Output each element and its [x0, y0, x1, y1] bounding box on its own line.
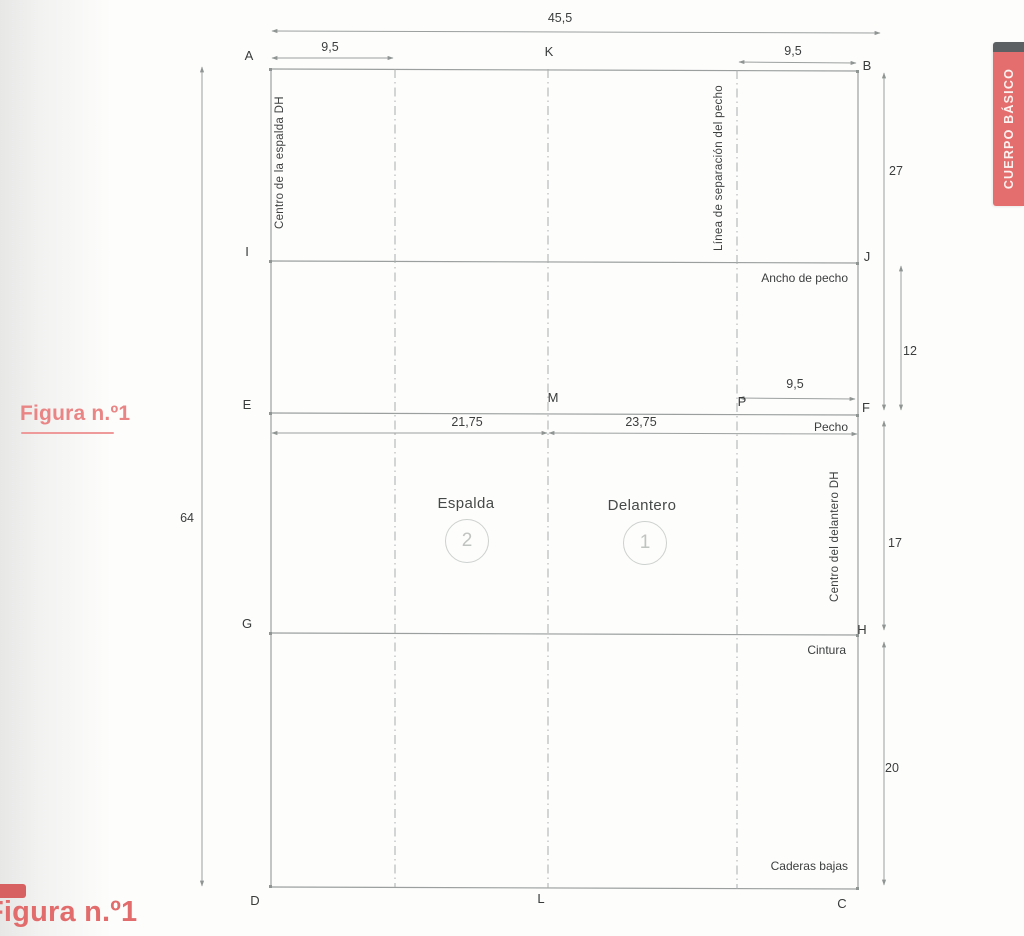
piece-number-espalda: 2 [445, 519, 489, 563]
point-L: L [532, 891, 550, 906]
dim-j-to-f: 12 [903, 344, 917, 358]
side-tab-cap [993, 42, 1024, 52]
label-linea-separacion: Línea de separación del pecho [713, 78, 725, 258]
dim-h-to-c: 20 [885, 761, 899, 775]
dim-back-half: 21,75 [438, 415, 496, 429]
dim-back-top: 9,5 [308, 40, 352, 54]
scanned-book-page: A K B I J E M P F G H D L C 45,5 9,5 9,5… [0, 0, 1024, 936]
point-F: F [857, 400, 875, 415]
piece-number-delantero-value: 1 [640, 532, 651, 554]
side-tab-body: CUERPO BÁSICO [993, 52, 1024, 206]
dim-f-to-h: 17 [888, 536, 902, 550]
dim-total-width: 45,5 [536, 11, 584, 25]
side-tab-label: CUERPO BÁSICO [1002, 68, 1016, 189]
label-delantero: Delantero [596, 497, 688, 514]
figure-caption: Figura n.º1 [20, 402, 130, 426]
dim-total-height: 64 [166, 511, 194, 525]
point-E: E [238, 397, 256, 412]
dim-b-to-f: 27 [889, 164, 903, 178]
label-cintura: Cintura [786, 643, 846, 657]
point-J: J [858, 249, 876, 264]
figure-caption-underline [21, 432, 114, 434]
piece-number-espalda-value: 2 [462, 530, 473, 552]
label-centro-delantero: Centro del delantero DH [829, 461, 841, 613]
dim-p-to-f: 9,5 [773, 377, 817, 391]
point-M: M [544, 390, 562, 405]
dim-front-half: 23,75 [612, 415, 670, 429]
point-K: K [540, 44, 558, 59]
point-I: I [238, 244, 256, 259]
label-pecho: Pecho [794, 420, 848, 434]
pattern-diagram-lines [0, 0, 1024, 936]
piece-number-delantero: 1 [623, 521, 667, 565]
point-G: G [238, 616, 256, 631]
dim-front-top: 9,5 [771, 44, 815, 58]
point-P: P [733, 394, 751, 409]
point-A: A [240, 48, 258, 63]
footer-figure-caption: Figura n.º1 [0, 896, 137, 929]
point-D: D [246, 893, 264, 908]
chapter-side-tab: CUERPO BÁSICO [993, 42, 1024, 206]
label-espalda: Espalda [420, 495, 512, 512]
label-ancho-de-pecho: Ancho de pecho [744, 271, 848, 285]
label-centro-espalda: Centro de la espalda DH [274, 88, 286, 238]
point-H: H [853, 622, 871, 637]
label-caderas-bajas: Caderas bajas [742, 859, 848, 873]
point-C: C [833, 896, 851, 911]
point-B: B [858, 58, 876, 73]
